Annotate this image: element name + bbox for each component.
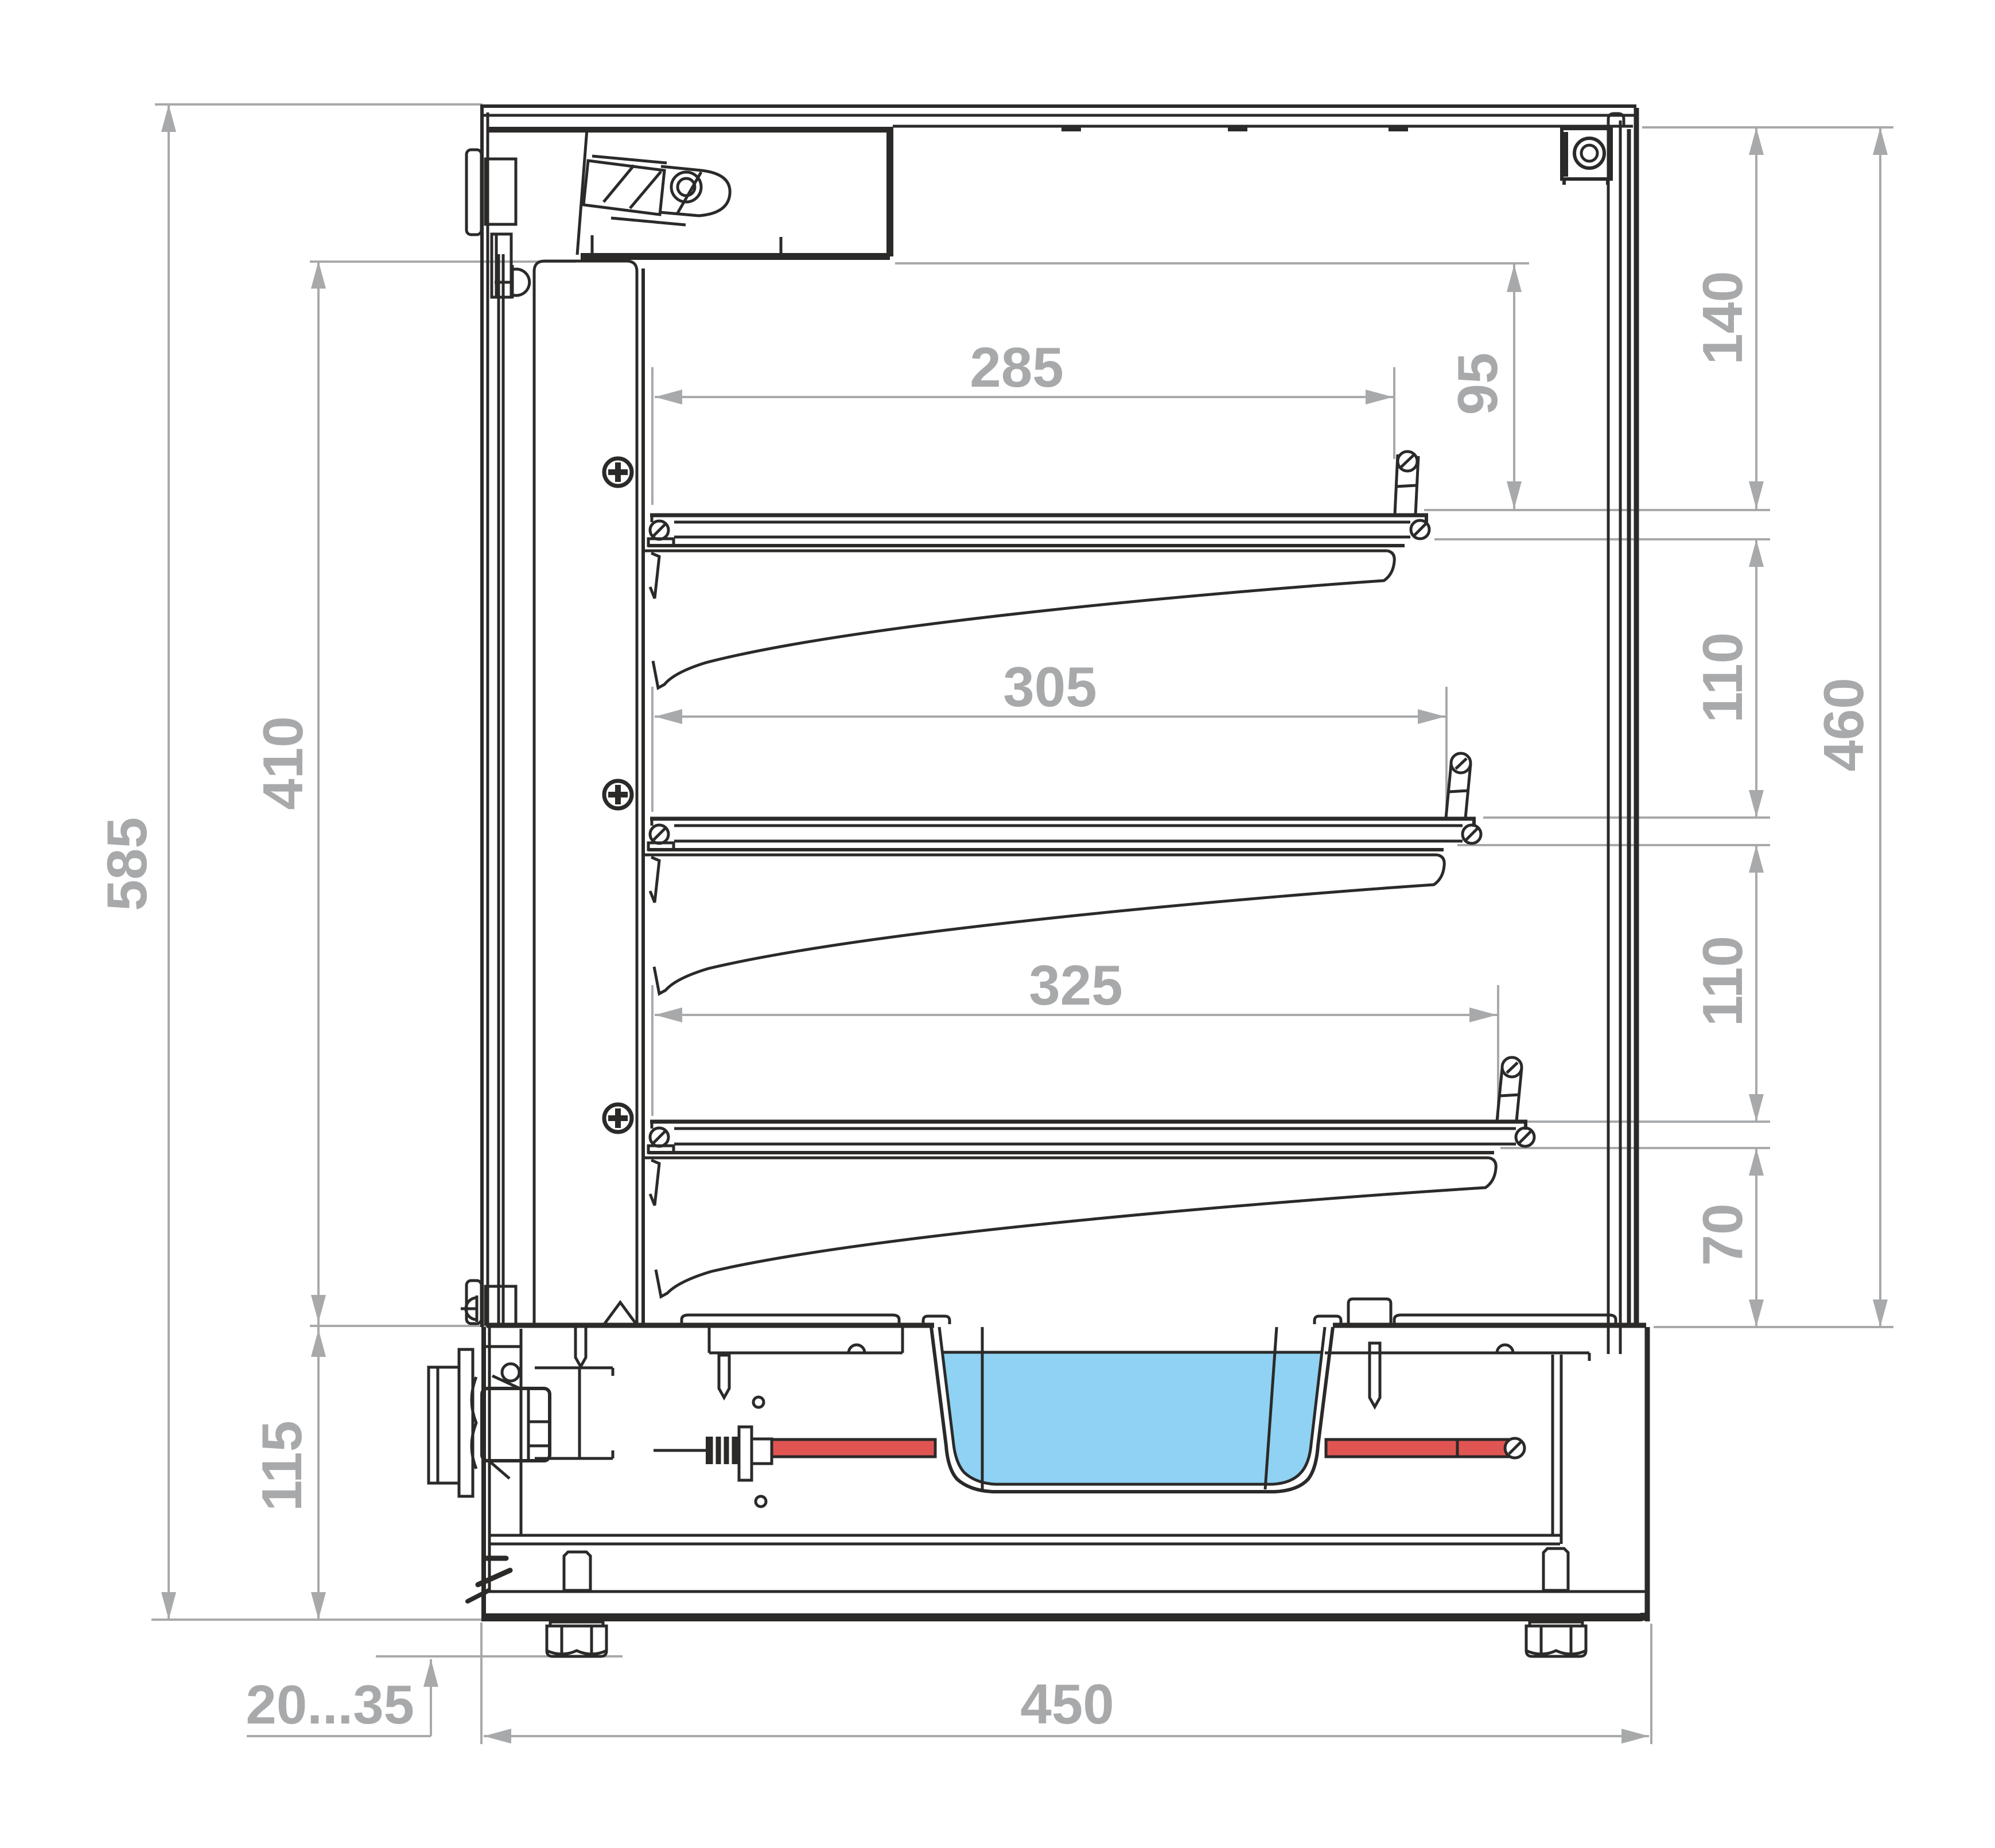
svg-text:285: 285	[970, 336, 1064, 399]
svg-text:20...35: 20...35	[246, 1674, 414, 1736]
svg-text:110: 110	[1691, 936, 1754, 1026]
svg-text:460: 460	[1812, 678, 1875, 772]
svg-text:325: 325	[1029, 954, 1123, 1017]
svg-text:70: 70	[1691, 1203, 1754, 1266]
svg-text:410: 410	[251, 716, 314, 810]
svg-text:110: 110	[1691, 632, 1754, 723]
svg-text:115: 115	[250, 1421, 313, 1511]
svg-text:95: 95	[1446, 352, 1509, 415]
svg-text:140: 140	[1691, 271, 1754, 365]
svg-text:450: 450	[1020, 1672, 1114, 1736]
svg-text:585: 585	[95, 817, 158, 911]
svg-text:305: 305	[1003, 655, 1097, 718]
